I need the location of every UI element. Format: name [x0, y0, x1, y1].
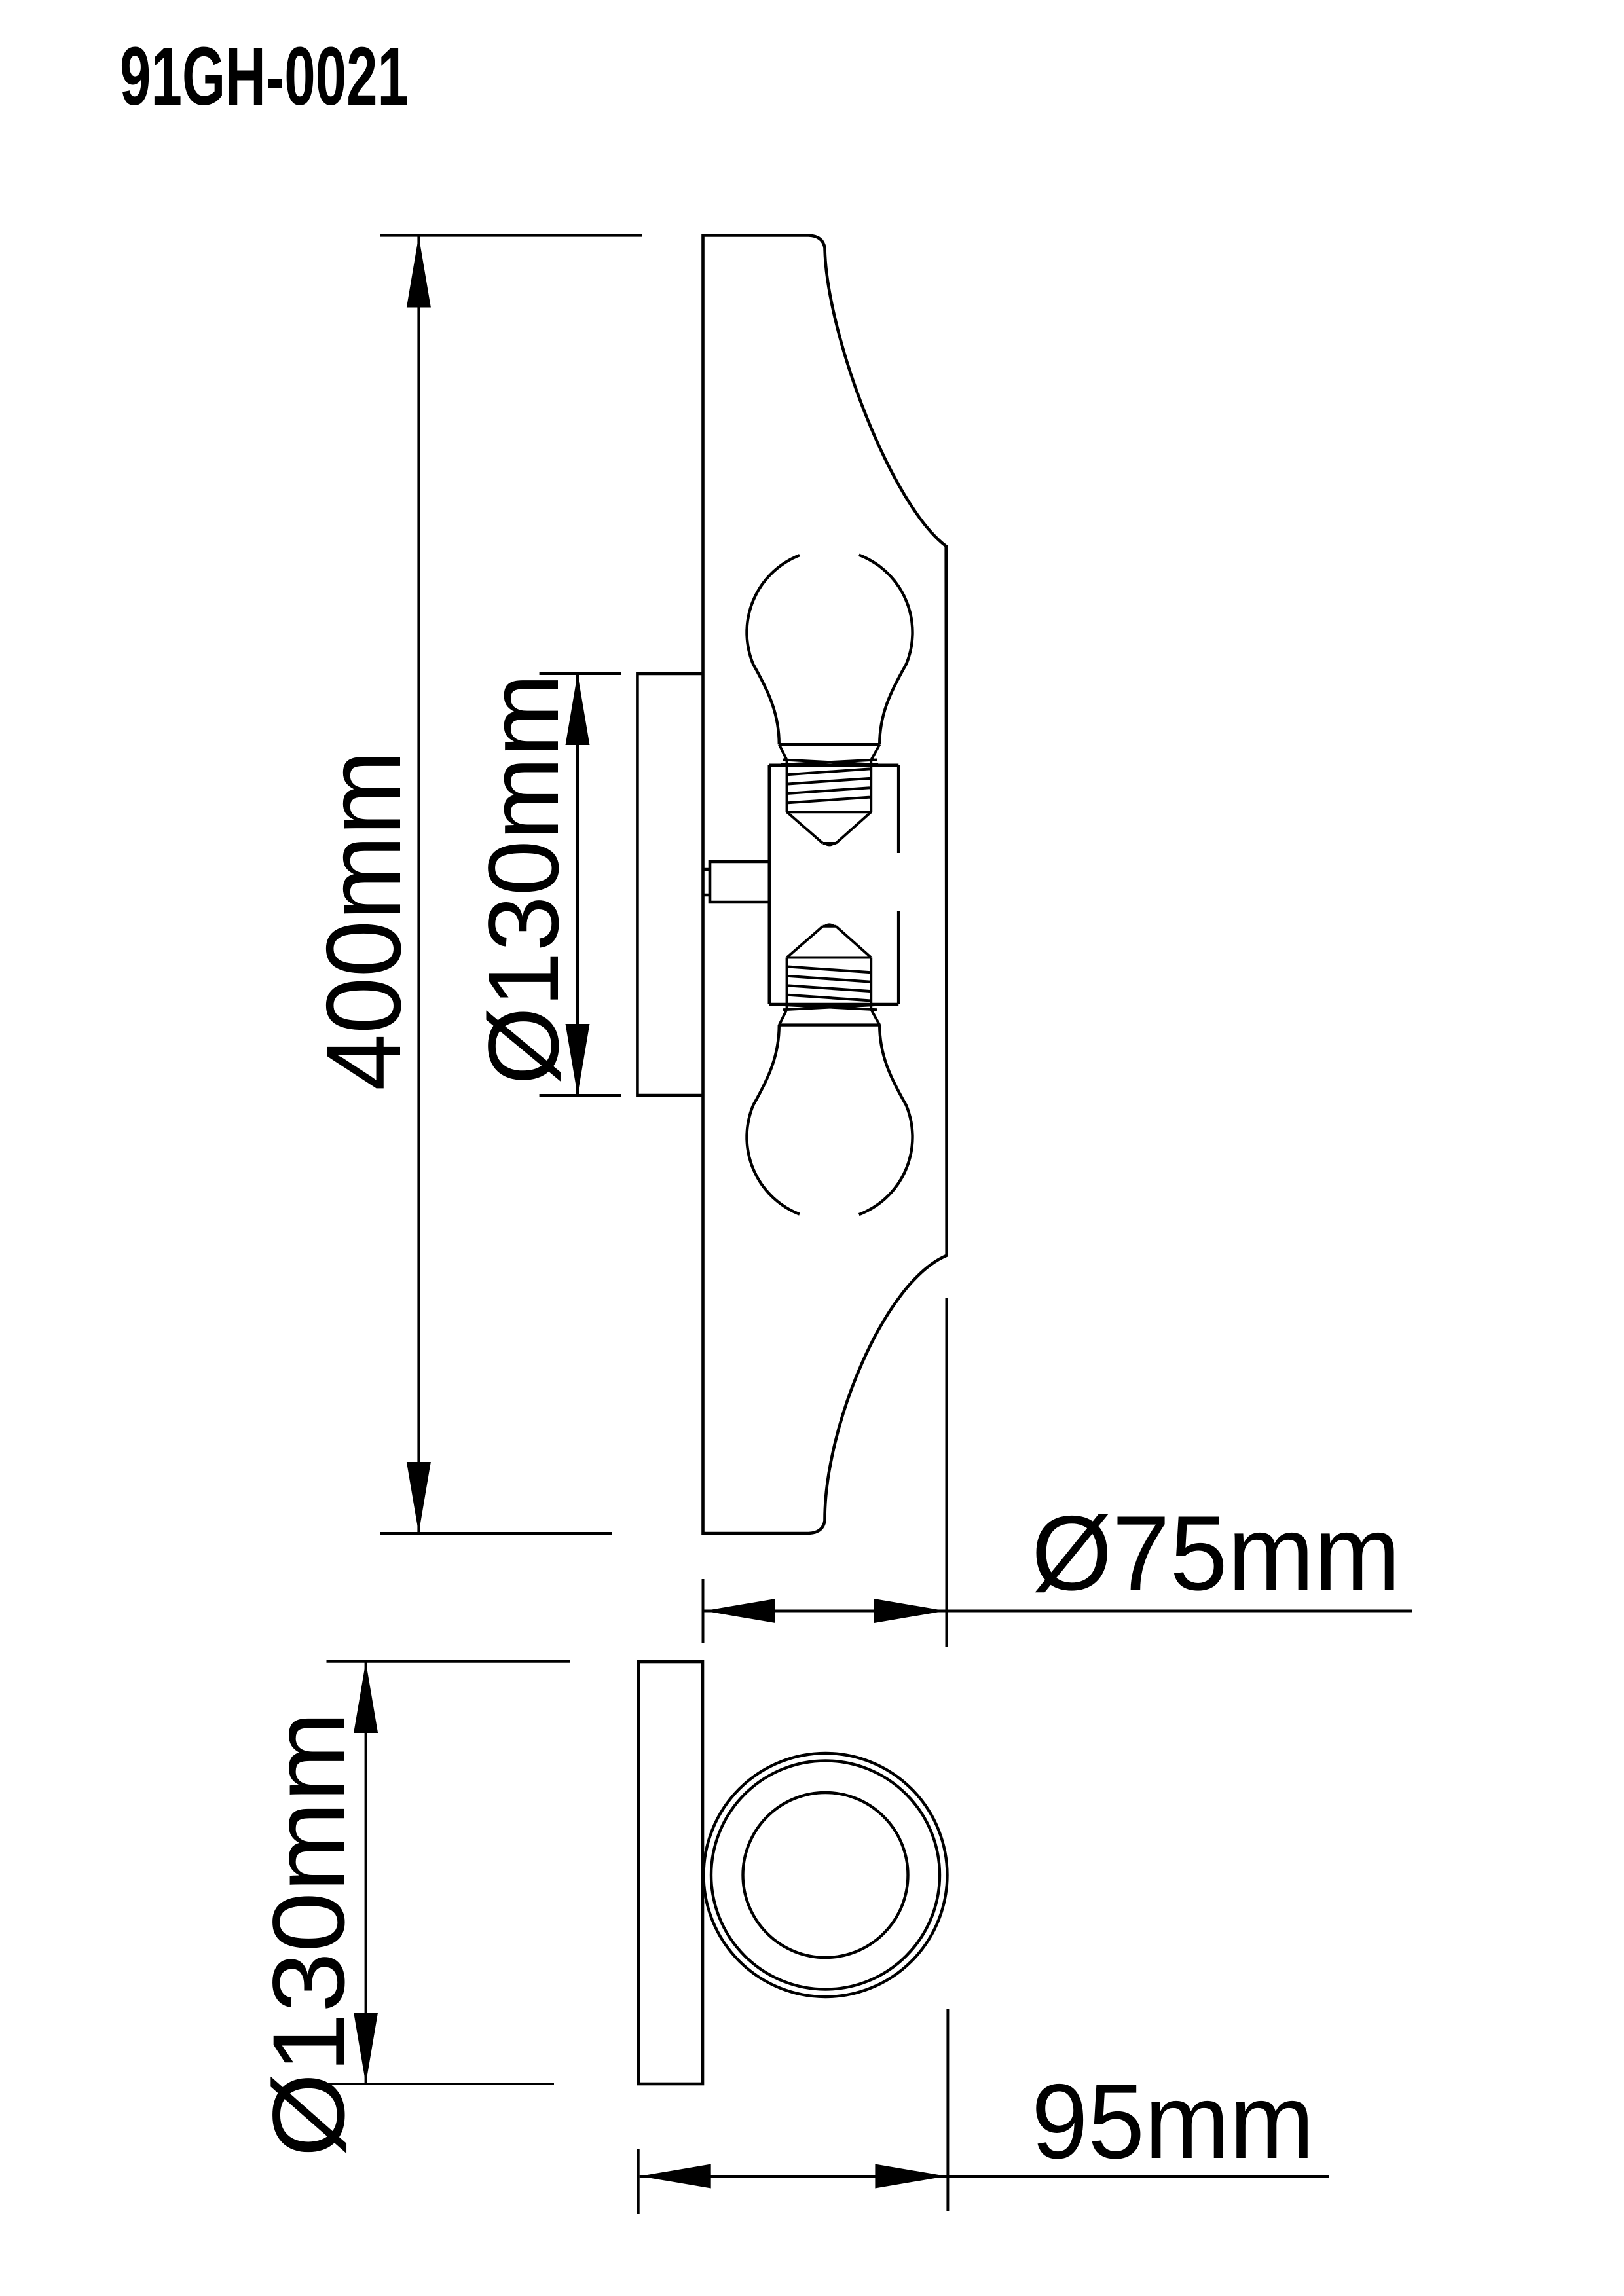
svg-text:Ø75mm: Ø75mm — [1031, 1494, 1401, 1613]
svg-text:400mm: 400mm — [304, 750, 423, 1091]
svg-text:95mm: 95mm — [1031, 2062, 1314, 2181]
svg-text:Ø130mm: Ø130mm — [252, 1711, 366, 2157]
svg-text:Ø130mm: Ø130mm — [468, 674, 580, 1085]
svg-text:91GH-0021: 91GH-0021 — [120, 30, 409, 122]
